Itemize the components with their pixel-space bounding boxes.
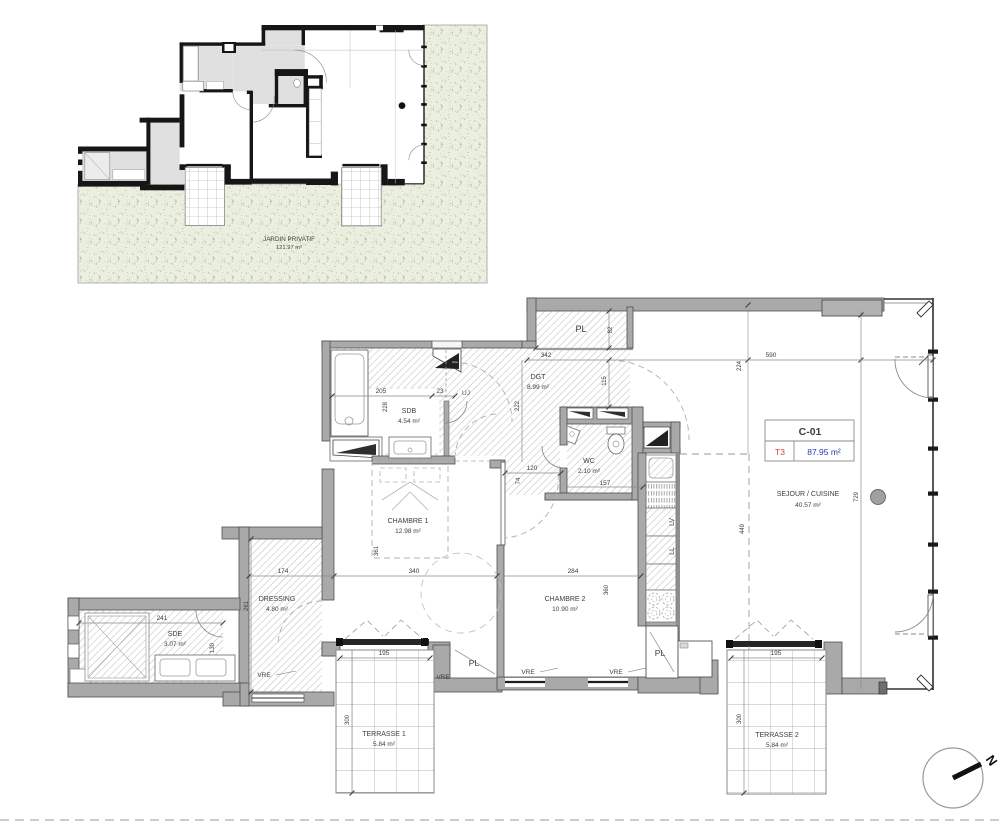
svg-text:174: 174 xyxy=(278,568,289,575)
svg-text:WC: WC xyxy=(583,458,595,465)
svg-text:23: 23 xyxy=(436,388,444,395)
svg-text:40.57 m²: 40.57 m² xyxy=(795,502,821,509)
svg-text:224: 224 xyxy=(737,360,743,371)
svg-text:TERRASSE 1: TERRASSE 1 xyxy=(362,731,406,738)
svg-text:74: 74 xyxy=(516,477,522,484)
svg-text:3.07 m²: 3.07 m² xyxy=(164,641,187,648)
svg-text:VRE: VRE xyxy=(521,669,535,676)
svg-text:130: 130 xyxy=(210,642,216,653)
svg-text:VRE: VRE xyxy=(436,674,450,681)
svg-text:590: 590 xyxy=(766,352,777,359)
svg-text:CHAMBRE 1: CHAMBRE 1 xyxy=(388,518,429,525)
svg-text:241: 241 xyxy=(157,615,168,622)
svg-text:DRESSING: DRESSING xyxy=(259,596,296,603)
svg-text:121.97 m²: 121.97 m² xyxy=(276,245,302,251)
svg-text:8.99 m²: 8.99 m² xyxy=(527,384,550,391)
svg-text:SEJOUR / CUISINE: SEJOUR / CUISINE xyxy=(777,491,840,498)
svg-text:VRE: VRE xyxy=(257,672,271,679)
svg-text:DGT: DGT xyxy=(531,374,547,381)
svg-text:UJ: UJ xyxy=(462,390,470,397)
svg-text:TERRASSE 2: TERRASSE 2 xyxy=(755,732,799,739)
svg-text:10.90 m²: 10.90 m² xyxy=(552,606,578,613)
svg-text:LV: LV xyxy=(669,518,676,526)
svg-text:5.84 m²: 5.84 m² xyxy=(766,742,789,749)
svg-text:2.10 m²: 2.10 m² xyxy=(578,468,601,475)
svg-text:449: 449 xyxy=(740,523,746,534)
svg-text:PL: PL xyxy=(575,324,586,334)
svg-text:4.54 m²: 4.54 m² xyxy=(398,418,421,425)
svg-text:222: 222 xyxy=(515,400,521,411)
svg-text:SDE: SDE xyxy=(168,631,183,638)
svg-text:87.95 m²: 87.95 m² xyxy=(807,447,841,457)
svg-text:729: 729 xyxy=(854,491,860,502)
svg-text:261: 261 xyxy=(244,600,250,611)
svg-text:4.80 m²: 4.80 m² xyxy=(266,606,289,613)
svg-text:342: 342 xyxy=(541,352,552,359)
svg-text:300: 300 xyxy=(345,714,351,725)
svg-text:T3: T3 xyxy=(775,447,785,457)
svg-text:PL: PL xyxy=(469,658,480,668)
svg-text:VRE: VRE xyxy=(609,669,623,676)
svg-text:120: 120 xyxy=(527,465,538,472)
svg-text:5.84 m²: 5.84 m² xyxy=(373,741,396,748)
svg-text:340: 340 xyxy=(409,568,420,575)
svg-text:82: 82 xyxy=(608,326,614,333)
svg-text:284: 284 xyxy=(568,568,579,575)
svg-text:CHAMBRE 2: CHAMBRE 2 xyxy=(545,596,586,603)
svg-text:205: 205 xyxy=(376,388,387,395)
svg-text:12.98 m²: 12.98 m² xyxy=(395,528,421,535)
svg-text:360: 360 xyxy=(604,584,610,595)
svg-text:195: 195 xyxy=(379,650,390,657)
svg-text:115: 115 xyxy=(602,376,608,386)
svg-text:PL: PL xyxy=(655,648,666,658)
svg-text:JARDIN PRIVATIF: JARDIN PRIVATIF xyxy=(263,236,315,243)
svg-text:C-01: C-01 xyxy=(799,426,822,438)
svg-text:195: 195 xyxy=(771,650,782,657)
svg-text:300: 300 xyxy=(737,713,743,724)
svg-text:157: 157 xyxy=(600,480,611,487)
svg-text:361: 361 xyxy=(374,545,380,556)
svg-text:N: N xyxy=(983,752,1000,768)
svg-text:228: 228 xyxy=(383,401,389,412)
svg-text:LL: LL xyxy=(669,547,676,555)
svg-text:SDB: SDB xyxy=(402,408,417,415)
